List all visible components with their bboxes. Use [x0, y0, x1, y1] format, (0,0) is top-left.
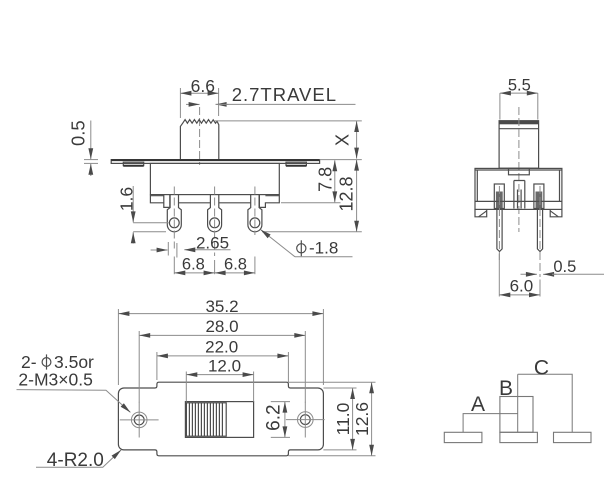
svg-text:12.0: 12.0 — [208, 356, 241, 375]
svg-text:C: C — [534, 357, 549, 380]
svg-text:A: A — [471, 393, 485, 416]
svg-text:6.6: 6.6 — [191, 76, 215, 96]
svg-text:B: B — [499, 377, 513, 400]
svg-text:2.65: 2.65 — [196, 234, 229, 253]
svg-text:11.0: 11.0 — [333, 402, 353, 435]
svg-text:12.8: 12.8 — [337, 176, 357, 211]
svg-text:28.0: 28.0 — [205, 317, 238, 336]
svg-text:0.5: 0.5 — [68, 120, 89, 146]
svg-text:2.7TRAVEL: 2.7TRAVEL — [232, 84, 337, 105]
svg-text:7.8: 7.8 — [315, 167, 335, 192]
svg-text:6.8: 6.8 — [182, 256, 205, 274]
svg-text:6.2: 6.2 — [264, 404, 285, 430]
svg-text:X: X — [333, 134, 353, 146]
svg-text:6.0: 6.0 — [510, 276, 534, 295]
svg-text:2-M3×0.5: 2-M3×0.5 — [18, 369, 92, 389]
svg-text:12.6: 12.6 — [352, 402, 372, 436]
svg-text:22.0: 22.0 — [205, 337, 238, 356]
svg-text:6.8: 6.8 — [224, 256, 247, 274]
svg-text:35.2: 35.2 — [205, 297, 238, 316]
svg-text:-1.8: -1.8 — [309, 239, 338, 258]
svg-text:1.6: 1.6 — [117, 187, 137, 211]
svg-text:5.5: 5.5 — [508, 76, 531, 94]
svg-text:0.5: 0.5 — [553, 258, 576, 276]
